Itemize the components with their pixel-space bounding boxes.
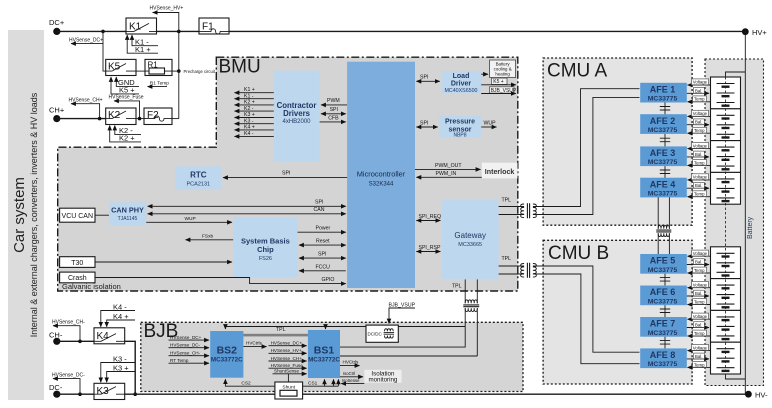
svg-text:HVSense_CH+: HVSense_CH+ (69, 98, 103, 104)
svg-text:K2 +: K2 + (119, 134, 135, 143)
svg-text:FCCU: FCCU (316, 264, 331, 270)
svg-text:WUP: WUP (484, 120, 497, 126)
svg-text:PCA2131: PCA2131 (187, 182, 211, 188)
svg-text:HVSense_DC+: HVSense_DC+ (69, 37, 103, 43)
svg-text:TPL: TPL (502, 197, 512, 203)
svg-text:Bal.: Bal. (695, 260, 702, 265)
svg-text:MC40XS6500: MC40XS6500 (445, 88, 478, 94)
svg-text:TPL: TPL (276, 327, 286, 333)
svg-text:Bal.: Bal. (695, 88, 702, 93)
svg-text:R1 Temp: R1 Temp (150, 80, 169, 86)
svg-text:MC33775: MC33775 (648, 127, 678, 134)
svg-text:HV+: HV+ (752, 28, 767, 37)
svg-text:CFB: CFB (328, 115, 339, 121)
svg-text:K5 +: K5 + (493, 79, 504, 85)
svg-text:DC+: DC+ (49, 18, 65, 27)
svg-text:K2: K2 (108, 110, 121, 121)
svg-text:WUP: WUP (185, 216, 196, 222)
svg-text:Chip: Chip (257, 245, 274, 254)
svg-text:HVSense_DC-: HVSense_DC- (52, 373, 85, 379)
svg-text:DC-: DC- (49, 383, 63, 392)
svg-text:K3 +: K3 + (113, 363, 129, 372)
svg-text:BMU: BMU (219, 57, 261, 78)
svg-text:MC33772C: MC33772C (308, 357, 340, 364)
svg-text:K4 +: K4 + (113, 312, 129, 321)
svg-text:Drivers: Drivers (283, 109, 311, 118)
svg-text:Car system: Car system (11, 177, 28, 253)
svg-text:RT Temp: RT Temp (170, 358, 189, 363)
svg-text:HVSense_CH+: HVSense_CH+ (271, 356, 303, 361)
svg-text:Bal.: Bal. (695, 183, 702, 188)
svg-text:Internal & external chargers,: Internal & external chargers, converters… (29, 92, 39, 337)
svg-text:HV-: HV- (755, 391, 768, 400)
svg-text:Load: Load (453, 73, 470, 80)
svg-text:TPL: TPL (502, 256, 512, 262)
svg-text:SPI: SPI (330, 107, 338, 113)
svg-text:Temp: Temp (694, 362, 705, 367)
svg-text:MC33775: MC33775 (648, 96, 678, 103)
svg-text:Driver: Driver (451, 80, 472, 87)
svg-text:K4 -: K4 - (113, 302, 127, 311)
svg-text:Pressure: Pressure (445, 119, 475, 126)
svg-text:Gateway: Gateway (454, 231, 486, 240)
svg-text:Bal.: Bal. (695, 354, 702, 359)
svg-text:SPI: SPI (420, 75, 428, 81)
svg-text:Interlock: Interlock (485, 168, 515, 176)
svg-text:MC33775: MC33775 (648, 267, 678, 274)
svg-text:MC33775: MC33775 (648, 330, 678, 337)
svg-text:Temp: Temp (694, 97, 705, 102)
svg-text:HVSense_DC+: HVSense_DC+ (170, 335, 202, 340)
svg-text:Voltage: Voltage (693, 314, 708, 319)
svg-text:PWM_IN: PWM_IN (436, 171, 457, 177)
svg-text:K1 +: K1 + (135, 45, 151, 54)
svg-text:monitoring: monitoring (368, 377, 397, 384)
svg-text:Reset: Reset (316, 239, 330, 245)
svg-text:Battery: Battery (747, 216, 754, 239)
svg-text:HVCtrls: HVCtrls (343, 359, 360, 364)
svg-text:HVSense_HV+: HVSense_HV+ (271, 348, 302, 353)
svg-text:heating: heating (495, 72, 510, 77)
svg-text:Voltage: Voltage (693, 345, 708, 350)
svg-text:AFE 8: AFE 8 (650, 350, 676, 360)
svg-text:HVSense_HV+: HVSense_HV+ (150, 6, 184, 12)
svg-text:Bal.: Bal. (695, 323, 702, 328)
svg-text:4xHB2000: 4xHB2000 (282, 119, 311, 125)
svg-text:HVSense_Fuse: HVSense_Fuse (271, 363, 304, 368)
svg-text:Crash: Crash (68, 275, 87, 282)
svg-text:HVSense_CH-: HVSense_CH- (52, 319, 85, 325)
svg-text:AFE 2: AFE 2 (650, 116, 676, 126)
svg-text:AFE 3: AFE 3 (650, 148, 676, 158)
svg-text:Microcontroller: Microcontroller (357, 170, 406, 179)
svg-text:Voltage: Voltage (693, 282, 708, 287)
svg-text:TPL: TPL (452, 283, 462, 289)
svg-text:MC33775: MC33775 (648, 298, 678, 305)
svg-text:PWM_OUT: PWM_OUT (435, 163, 462, 169)
svg-text:GPIO: GPIO (322, 277, 335, 283)
svg-text:HVSense_DC-: HVSense_DC- (170, 343, 201, 348)
svg-text:NBP8: NBP8 (453, 133, 466, 139)
svg-text:BS2: BS2 (217, 345, 238, 357)
svg-text:Voltage: Voltage (693, 80, 708, 85)
svg-text:TJA1145: TJA1145 (118, 216, 138, 222)
svg-text:SPI: SPI (420, 120, 428, 126)
svg-text:SPI: SPI (315, 200, 323, 206)
svg-text:Shunt: Shunt (282, 384, 295, 390)
svg-text:MC33665: MC33665 (458, 242, 482, 248)
svg-text:Voltage: Voltage (693, 175, 708, 180)
svg-text:CAN: CAN (314, 207, 325, 213)
svg-text:CS2: CS2 (241, 380, 251, 386)
svg-text:Voltage: Voltage (693, 111, 708, 116)
svg-text:F2: F2 (147, 110, 159, 121)
svg-text:HVSense_DC+: HVSense_DC+ (271, 341, 303, 346)
svg-text:CMU B: CMU B (548, 243, 609, 264)
svg-text:Precharge circuit: Precharge circuit (184, 69, 216, 74)
svg-text:Temp: Temp (694, 128, 705, 133)
svg-text:HVSense_Fuse: HVSense_Fuse (109, 94, 144, 100)
svg-text:Temp: Temp (694, 192, 705, 197)
svg-text:Temp: Temp (694, 160, 705, 165)
svg-text:MC33772C: MC33772C (211, 357, 243, 364)
svg-text:CH+: CH+ (49, 106, 65, 115)
svg-text:CMU A: CMU A (547, 61, 608, 82)
svg-text:AFE 5: AFE 5 (650, 256, 676, 266)
svg-text:SPI: SPI (282, 171, 290, 177)
svg-text:K5 +: K5 + (119, 86, 135, 95)
svg-text:BS1: BS1 (314, 345, 335, 357)
svg-text:SPI_REQ: SPI_REQ (419, 214, 442, 220)
svg-text:IsoCtrl: IsoCtrl (343, 371, 355, 376)
svg-text:SPI_RSP: SPI_RSP (419, 245, 441, 251)
svg-text:DC/DC: DC/DC (368, 332, 383, 337)
svg-text:Bal.: Bal. (695, 120, 702, 125)
svg-text:IsoSense: IsoSense (342, 378, 360, 383)
svg-text:F1: F1 (202, 22, 214, 33)
svg-text:CAN PHY: CAN PHY (111, 206, 144, 215)
svg-text:T30: T30 (71, 260, 83, 267)
svg-text:S32K344: S32K344 (369, 182, 394, 188)
svg-text:Temp: Temp (694, 299, 705, 304)
svg-text:PWM: PWM (327, 98, 340, 104)
svg-text:Temp: Temp (694, 331, 705, 336)
svg-text:BJB_VSUP: BJB_VSUP (491, 88, 517, 94)
svg-text:FSxb: FSxb (202, 233, 214, 239)
svg-text:VCU CAN: VCU CAN (62, 213, 94, 220)
svg-text:CS1: CS1 (308, 380, 318, 386)
svg-text:Voltage: Voltage (693, 143, 708, 148)
svg-text:AFE 1: AFE 1 (650, 84, 676, 94)
svg-text:MC33775: MC33775 (648, 191, 678, 198)
svg-text:K3 -: K3 - (113, 354, 127, 363)
svg-text:AFE 7: AFE 7 (650, 319, 676, 329)
svg-text:AFE 6: AFE 6 (650, 287, 676, 297)
svg-text:HVCtrls: HVCtrls (246, 340, 263, 345)
svg-text:FS26: FS26 (259, 256, 272, 262)
svg-text:SPI: SPI (318, 252, 326, 258)
svg-text:Temp: Temp (694, 268, 705, 273)
svg-text:AFE 4: AFE 4 (650, 179, 676, 189)
svg-text:MC33775: MC33775 (648, 361, 678, 368)
svg-text:RTC: RTC (190, 171, 207, 180)
svg-text:Bal.: Bal. (695, 291, 702, 296)
svg-text:HVSense_CH-: HVSense_CH- (170, 351, 201, 356)
svg-text:Voltage: Voltage (693, 251, 708, 256)
svg-text:MC33775: MC33775 (648, 159, 678, 166)
svg-text:Power: Power (316, 226, 331, 232)
svg-text:ShuntSense: ShuntSense (274, 369, 299, 374)
svg-text:Bal.: Bal. (695, 152, 702, 157)
